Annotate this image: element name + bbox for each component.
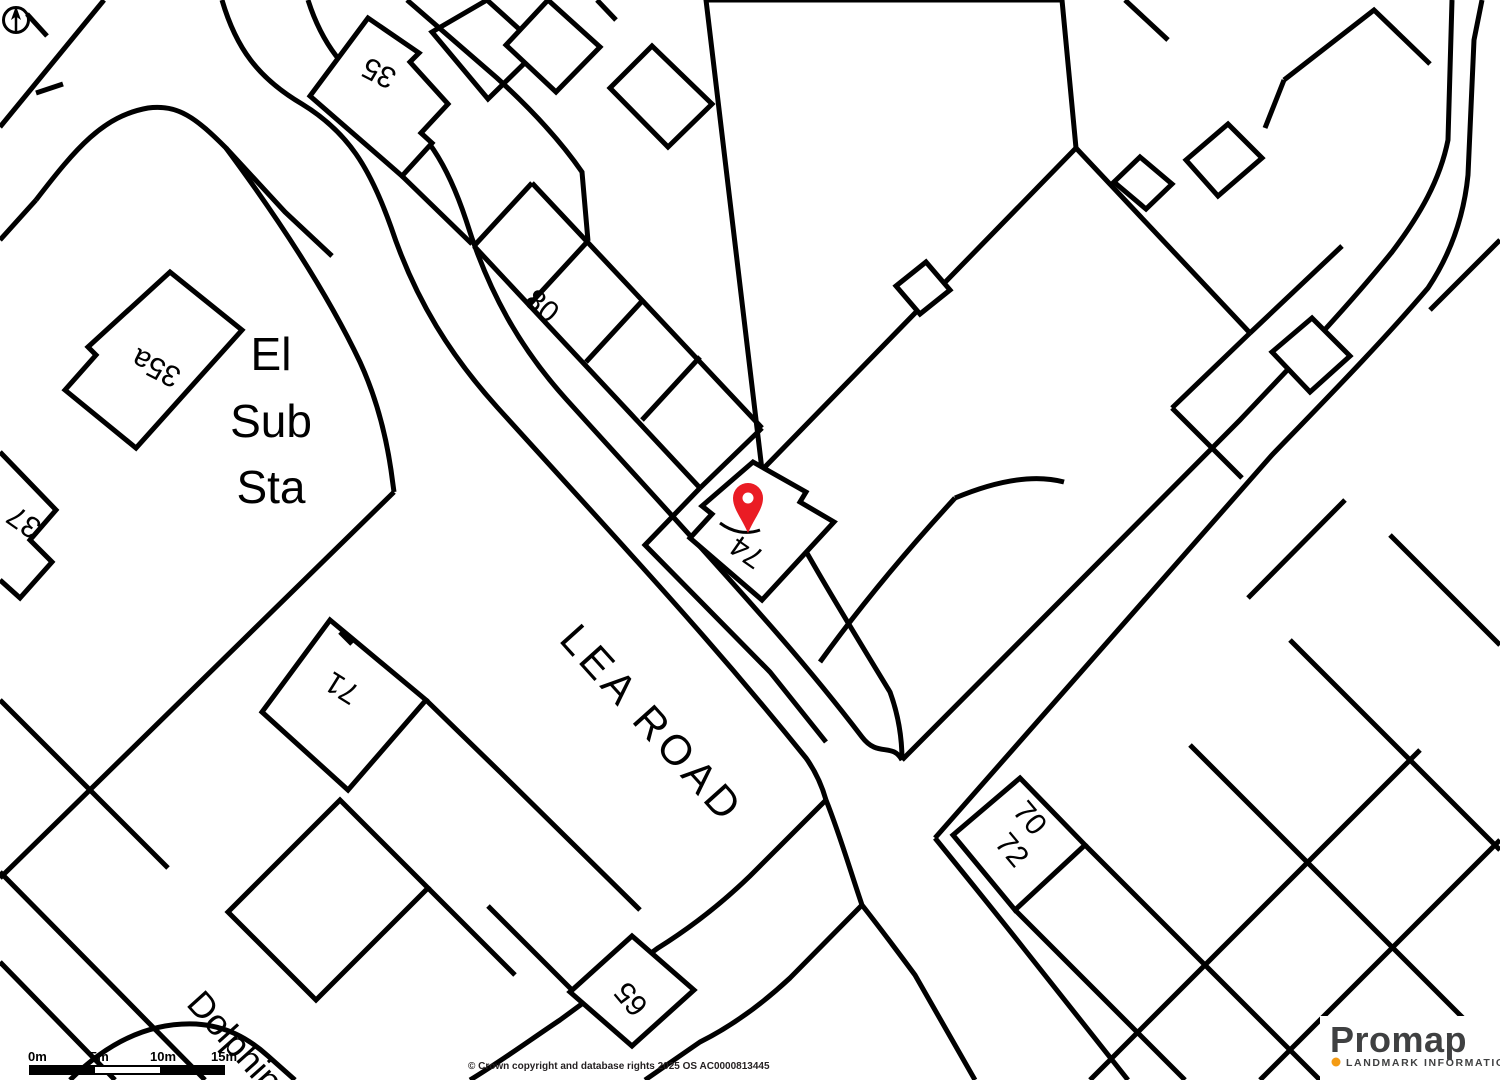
house-number-80: 80	[518, 283, 565, 330]
map-viewport[interactable]: 35 35a 80 74 71 37 65 70 72 El Sub Sta L…	[0, 0, 1500, 1080]
promap-logo: Promap LANDMARK INFORMATION	[1320, 1016, 1500, 1080]
north-arrow-icon	[4, 6, 29, 33]
scale-tick-0m: 0m	[28, 1049, 47, 1064]
substation-label-line3: Sta	[236, 461, 305, 513]
substation-label-line1: El	[251, 328, 292, 380]
copyright-text: © Crown copyright and database rights 20…	[468, 1061, 770, 1072]
scale-tick-10m: 10m	[150, 1049, 176, 1064]
house-number-37: 37	[1, 499, 47, 545]
street-label-lea-road: LEA ROAD	[551, 615, 753, 832]
landmark-dot-icon	[1332, 1058, 1341, 1067]
scale-tick-15m: 15m	[211, 1049, 237, 1064]
promap-logo-text: Promap	[1330, 1019, 1467, 1060]
substation-label-line2: Sub	[230, 395, 312, 447]
landmark-tagline: LANDMARK INFORMATION	[1346, 1057, 1500, 1069]
scale-bar: 0m 5m 10m 15m	[28, 1049, 237, 1074]
scale-tick-5m: 5m	[90, 1049, 109, 1064]
map-canvas[interactable]: 35 35a 80 74 71 37 65 70 72 El Sub Sta L…	[0, 0, 1500, 1080]
